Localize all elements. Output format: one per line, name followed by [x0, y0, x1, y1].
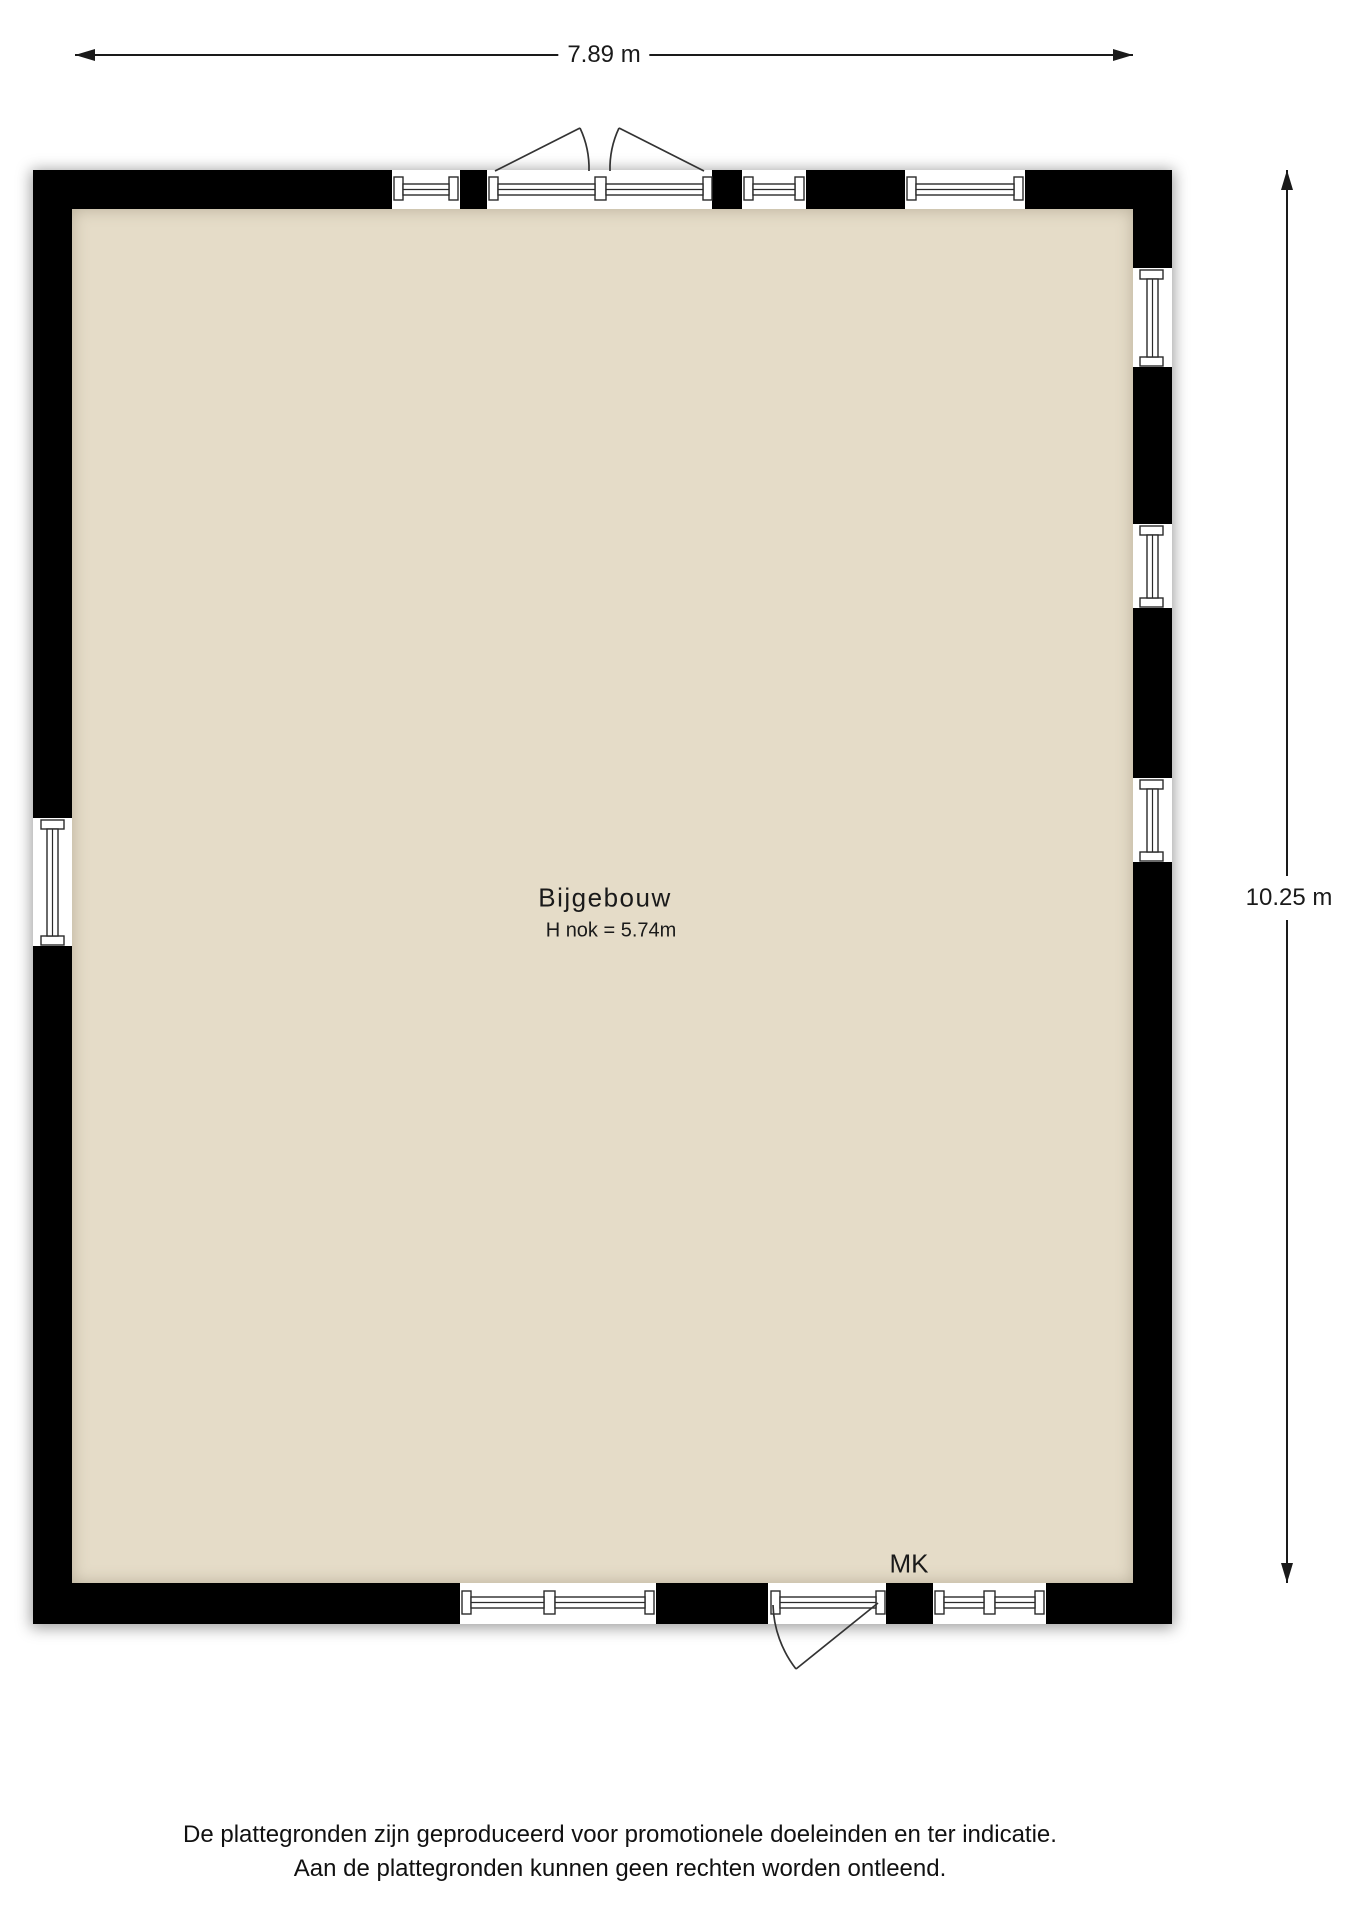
window-bottom-1 — [460, 1583, 656, 1624]
arrow-right-icon — [1113, 49, 1133, 61]
window-bottom-2 — [933, 1583, 1046, 1624]
arrow-up-icon — [1281, 170, 1293, 190]
width-dimension-label: 7.89 m — [558, 39, 649, 71]
door-swing-right-arc — [610, 128, 619, 171]
single-door-bottom — [768, 1583, 886, 1669]
height-dimension-label: 10.25 m — [1240, 876, 1339, 920]
window-top-3 — [905, 170, 1025, 209]
arrow-down-icon — [1281, 1563, 1293, 1583]
window-right-3 — [1133, 778, 1172, 862]
disclaimer-line-2: Aan de plattegronden kunnen geen rechten… — [0, 1852, 1240, 1886]
window-right-2 — [1133, 524, 1172, 608]
double-door-top — [487, 128, 712, 209]
floor-plan-svg — [0, 0, 1358, 1920]
door-swing-right — [619, 128, 704, 171]
door-swing-left-arc — [580, 128, 589, 171]
meter-cupboard-label: MK — [890, 1549, 929, 1580]
window-right-1 — [1133, 268, 1172, 367]
window-top-1 — [392, 170, 460, 209]
arrow-left-icon — [75, 49, 95, 61]
disclaimer-line-1: De plattegronden zijn geproduceerd voor … — [0, 1818, 1240, 1852]
window-top-2 — [742, 170, 806, 209]
ridge-height-label: H nok = 5.74m — [546, 920, 677, 943]
door-swing-left — [495, 128, 580, 171]
room-name-label: Bijgebouw — [538, 883, 671, 914]
window-left-1 — [33, 818, 72, 946]
disclaimer: De plattegronden zijn geproduceerd voor … — [0, 1818, 1240, 1886]
